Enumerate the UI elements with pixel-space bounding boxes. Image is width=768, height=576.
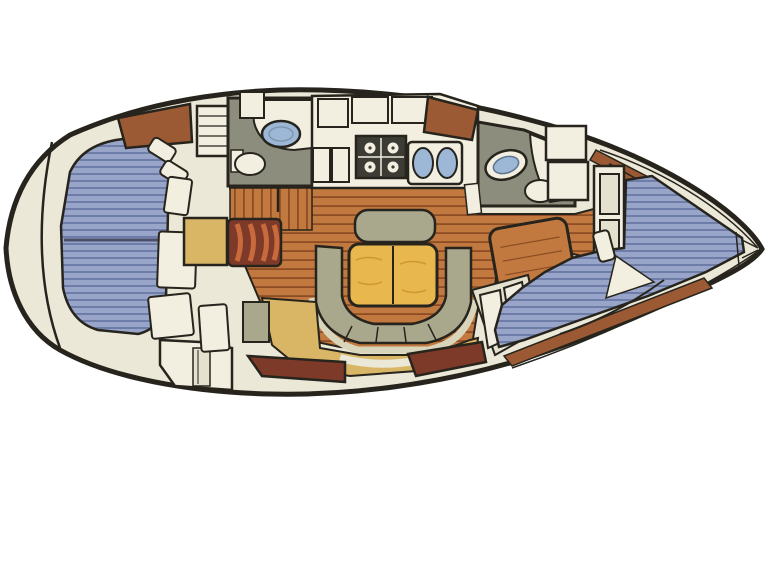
aft-head-toilet (235, 153, 265, 175)
galley-sink-left (413, 148, 433, 178)
seat-cushion (164, 177, 193, 216)
galley-sink-right (437, 148, 457, 178)
settee-backrest (355, 210, 435, 242)
hanging-locker (197, 106, 229, 156)
shelf-bin (600, 174, 619, 214)
aft-head-sink (262, 121, 300, 147)
cabinet-door (193, 348, 210, 386)
cabin-locker (548, 162, 588, 200)
boat-floorplan-image (0, 0, 768, 576)
head-door (464, 183, 481, 214)
counter-board (332, 148, 349, 182)
galley-locker (318, 99, 348, 127)
seat-cushion (148, 293, 194, 339)
top-locker (240, 92, 264, 118)
galley-locker (352, 97, 388, 123)
companionway-steps (184, 218, 281, 266)
counter-board (313, 148, 330, 182)
port-bench-cushion (198, 304, 229, 352)
floorplan-svg (0, 0, 768, 576)
step-side-block (184, 218, 227, 265)
cabin-locker (546, 126, 586, 160)
port-bench (243, 302, 269, 342)
